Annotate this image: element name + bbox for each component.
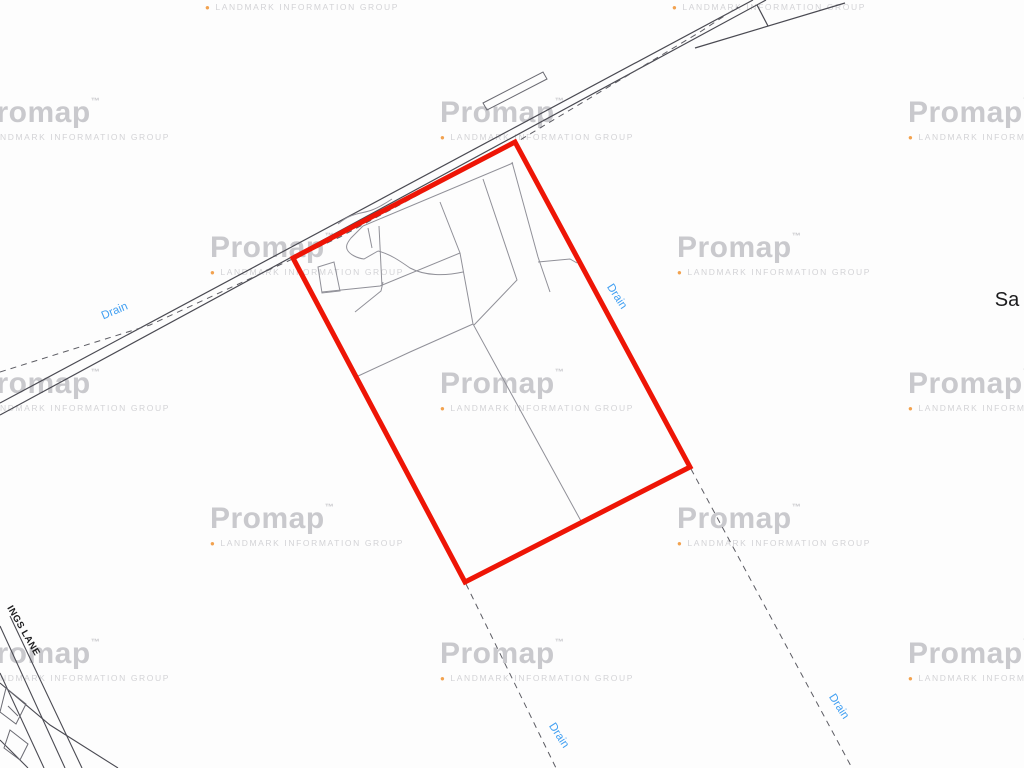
drain-label: Drain: [604, 282, 629, 311]
drain-label: Drain: [826, 692, 851, 721]
drain-label: Drain: [100, 301, 130, 322]
map-canvas[interactable]: Promap™● LANDMARK INFORMATION GROUPProma…: [0, 0, 1024, 768]
label-layer: INGS LANE Sa DrainDrainDrainDrain: [0, 0, 1024, 768]
drain-label: Drain: [546, 721, 571, 750]
road-name-label: INGS LANE: [5, 604, 41, 657]
place-name-partial-label: Sa: [995, 290, 1019, 310]
